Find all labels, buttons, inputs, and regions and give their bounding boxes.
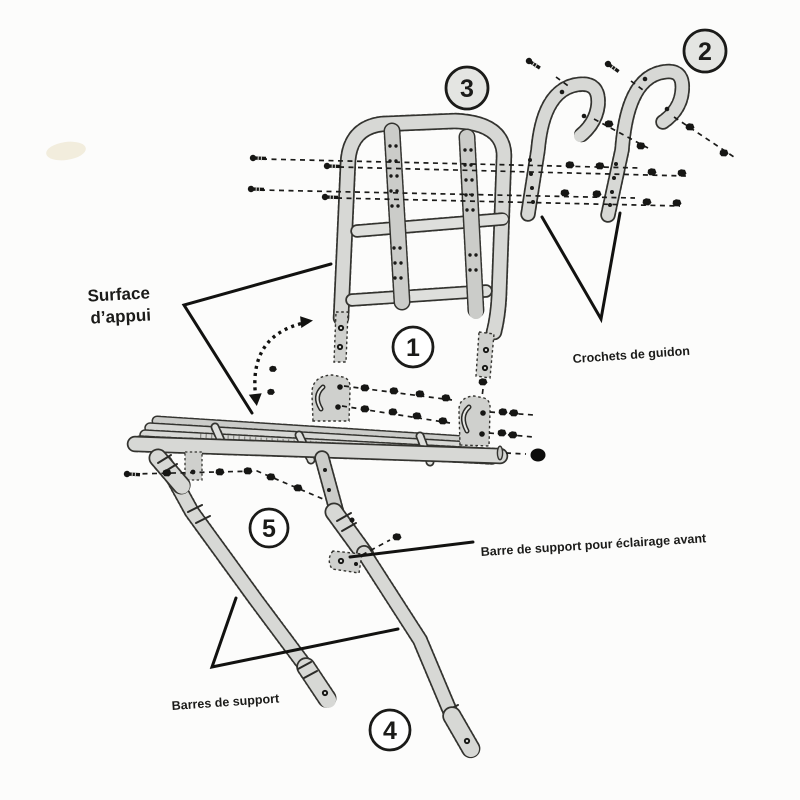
tube-end-cap xyxy=(497,446,502,460)
label-surface-line1: Surface xyxy=(87,283,150,305)
label-surface-line2: d’appui xyxy=(90,305,151,327)
light-support-bracket xyxy=(329,551,362,573)
left-mount-tab xyxy=(185,452,202,480)
frame-right-foot xyxy=(476,332,494,378)
end-knob xyxy=(531,449,546,462)
part-number-2: 2 xyxy=(698,38,712,66)
part-number-1: 1 xyxy=(406,334,420,362)
part-number-3: 3 xyxy=(460,75,474,103)
part-number-4: 4 xyxy=(383,717,397,745)
frame-left-foot xyxy=(334,312,348,362)
exploded-diagram: 1 2 3 4 5 Surface d’appui Crochets de gu… xyxy=(0,0,800,800)
exploded-diagram-canvas: 1 2 3 4 5 Surface d’appui Crochets de gu… xyxy=(0,0,800,800)
part-number-5: 5 xyxy=(262,515,276,543)
